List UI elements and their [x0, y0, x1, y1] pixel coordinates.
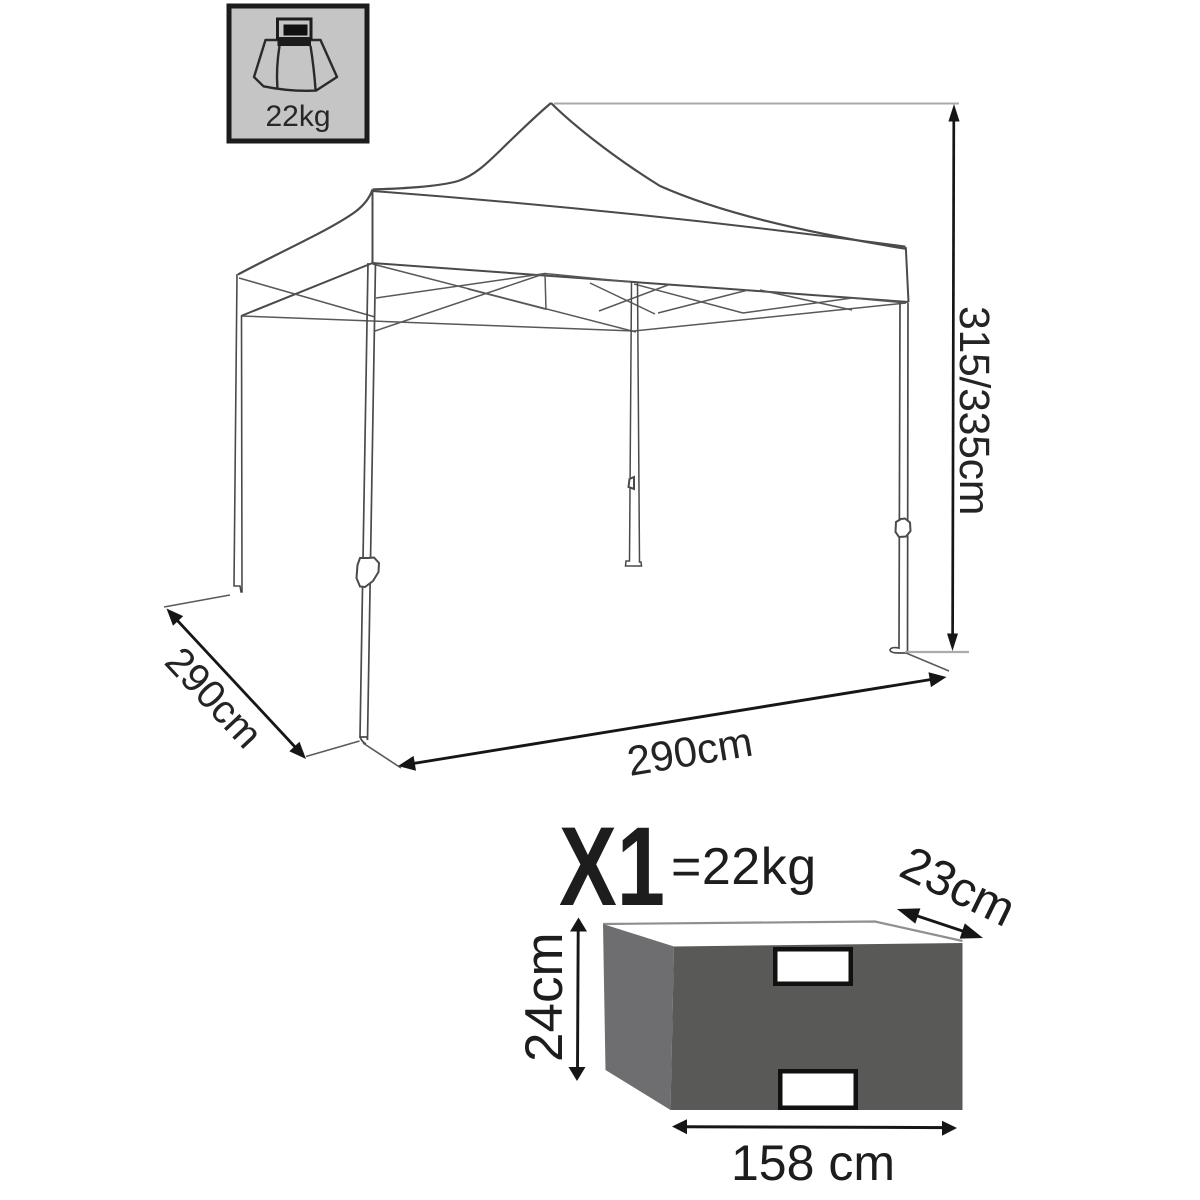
svg-text:158 cm: 158 cm — [731, 1135, 895, 1191]
svg-text:290cm: 290cm — [156, 639, 270, 757]
svg-text:=22kg: =22kg — [671, 838, 817, 896]
svg-text:290cm: 290cm — [624, 718, 756, 785]
svg-text:24cm: 24cm — [515, 932, 574, 1062]
svg-text:23cm: 23cm — [892, 836, 1023, 937]
svg-text:X1: X1 — [559, 804, 665, 929]
svg-text:22kg: 22kg — [265, 100, 330, 133]
svg-text:315/335cm: 315/335cm — [950, 306, 998, 515]
